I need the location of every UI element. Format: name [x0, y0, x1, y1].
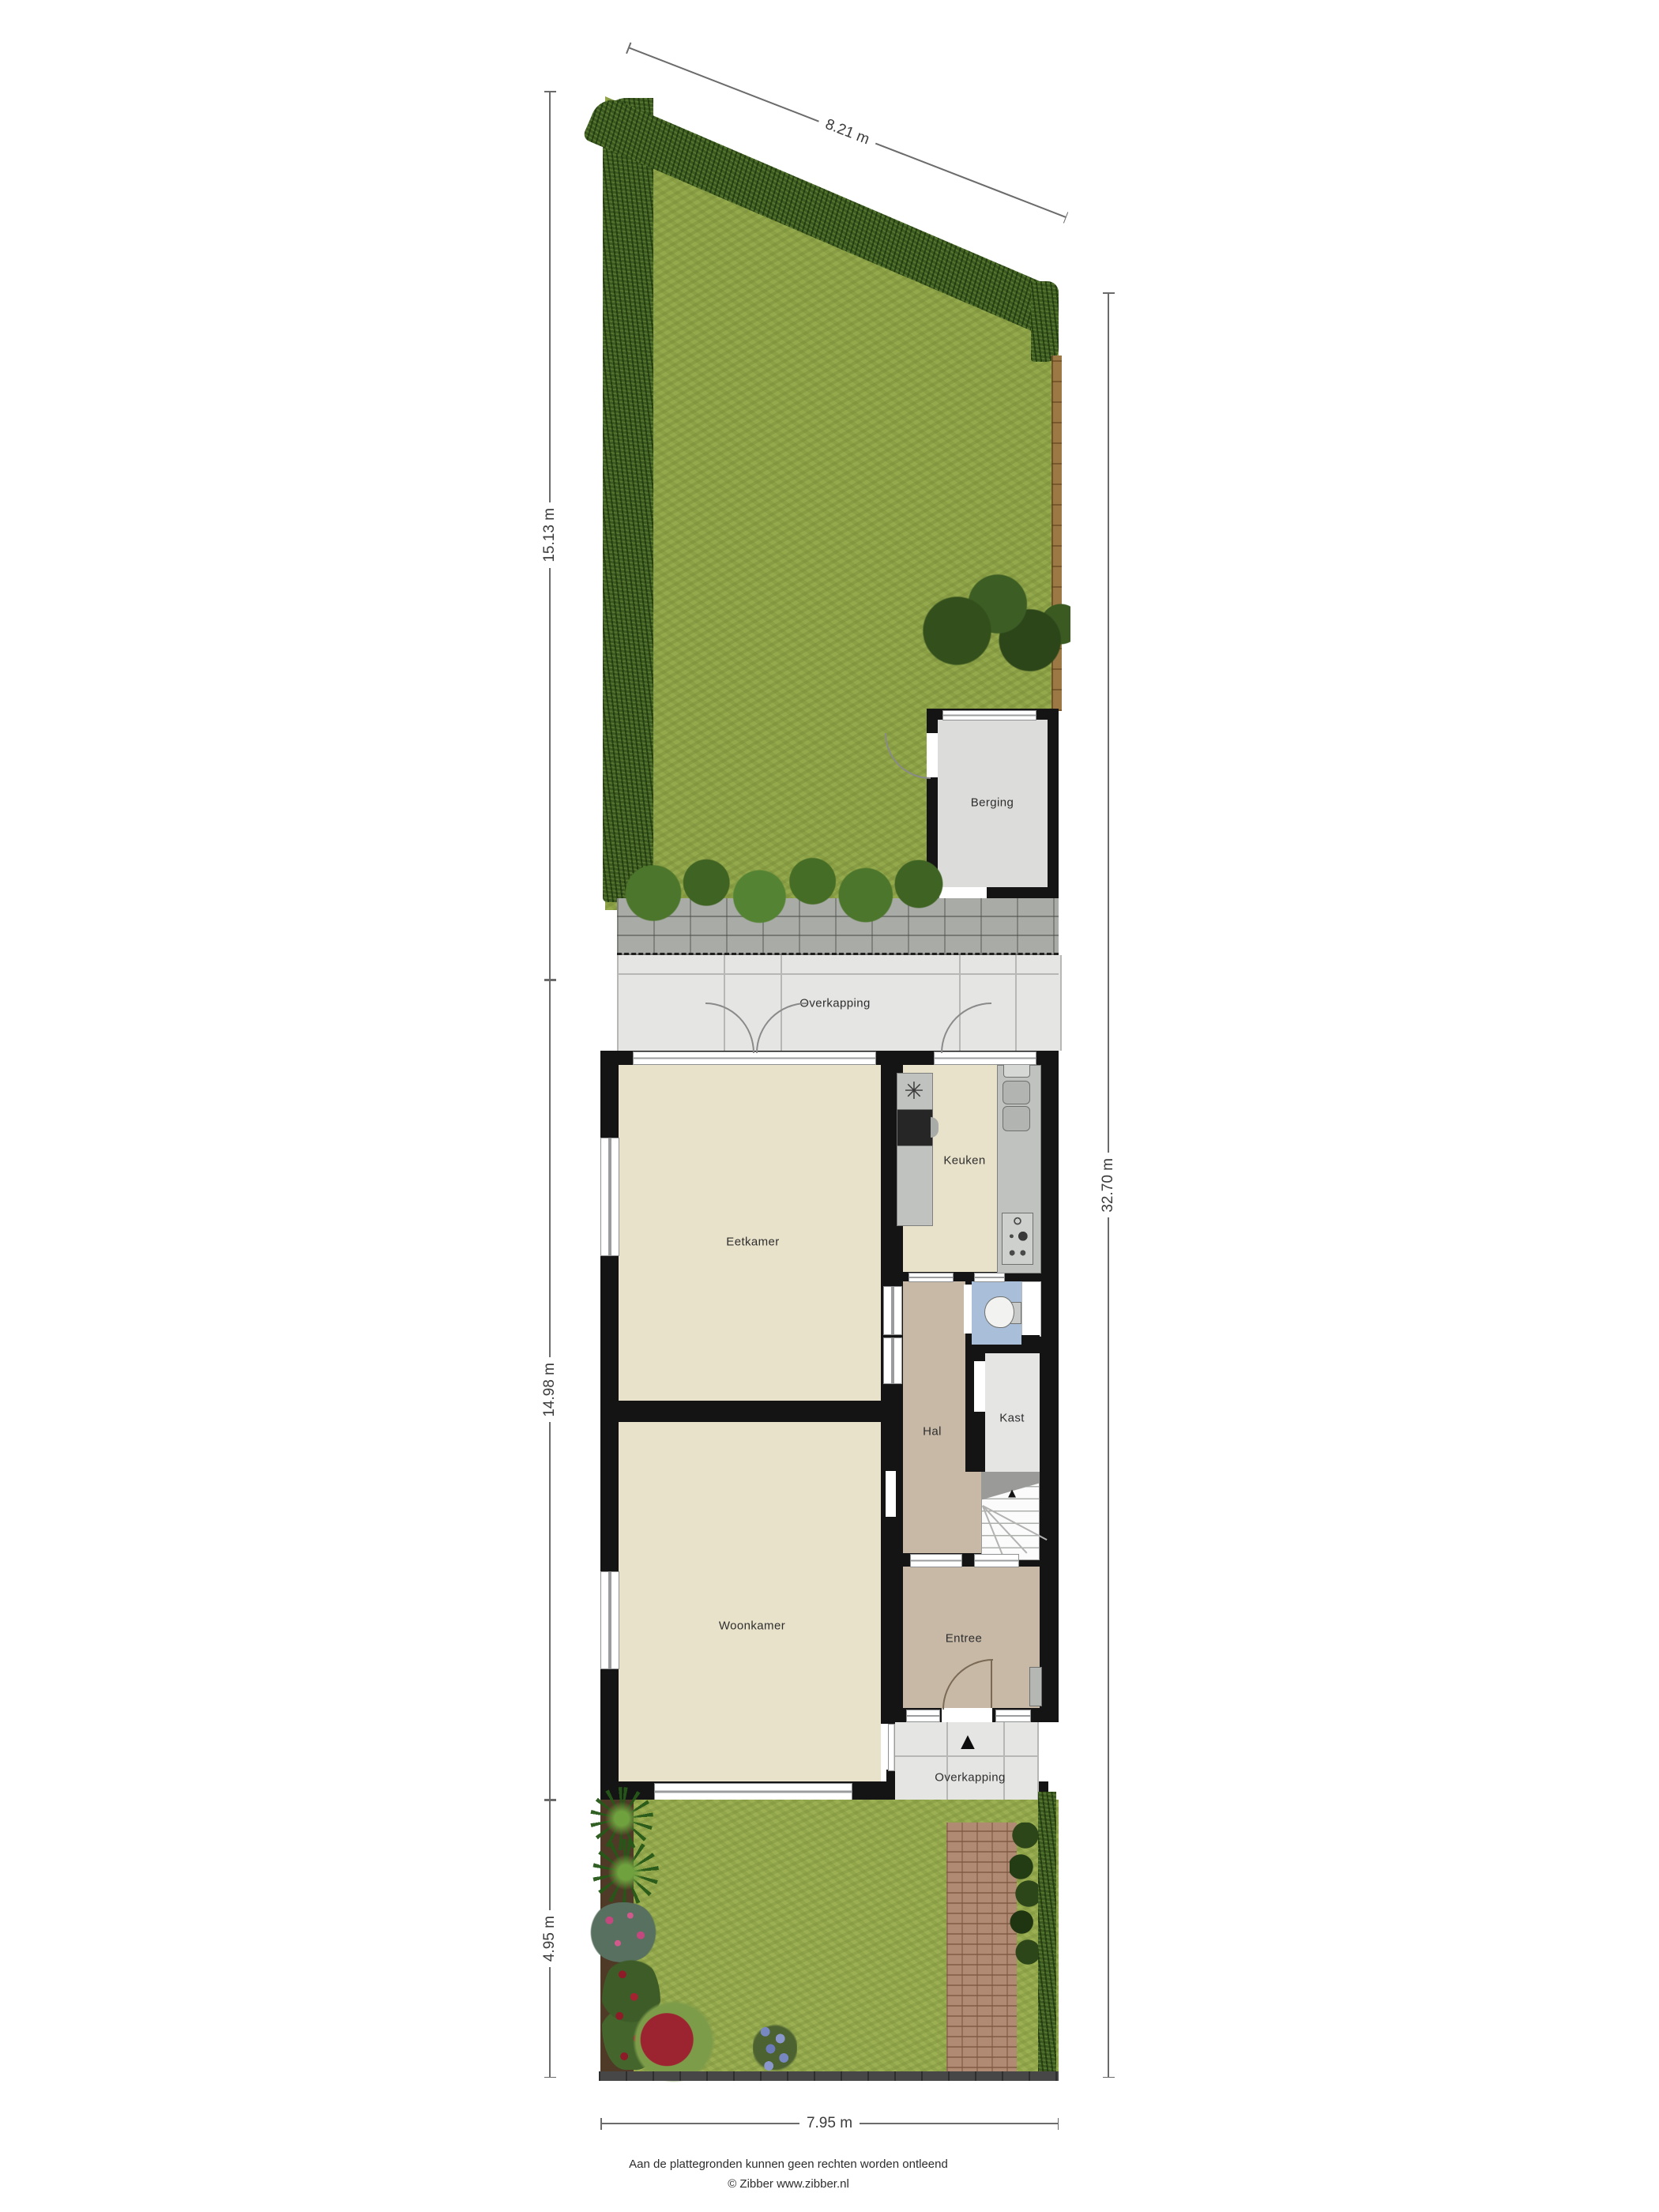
north-arrow-icon: ▲	[956, 1730, 980, 1754]
dim-line	[1108, 1217, 1109, 2076]
room-label-kast: Kast	[999, 1412, 1025, 1425]
canopy-line	[1015, 955, 1017, 1051]
window-eetkamer-hal-1	[883, 1286, 902, 1335]
room-label-berging: Berging	[971, 796, 1014, 810]
dim-tick	[1103, 2077, 1115, 2078]
door-toilet	[964, 1285, 972, 1334]
footer: Aan de plattegronden kunnen geen rechten…	[0, 2155, 1577, 2195]
dim-line	[549, 1422, 551, 1798]
hedge-corner-right	[1031, 281, 1059, 362]
front-door-opening	[942, 1708, 992, 1722]
front-garden-border	[599, 2071, 1059, 2081]
dimension-label-left-middle: 14.98 m	[541, 1357, 559, 1423]
path-border-shrubs	[1010, 1823, 1041, 1981]
footer-credit: © Zibber www.zibber.nl	[0, 2175, 1577, 2195]
house-wall-right	[1040, 1051, 1059, 1722]
dim-line	[549, 1967, 551, 2076]
dim-line	[1108, 294, 1109, 1153]
hedge-front-right	[1038, 1792, 1056, 2076]
dim-tick	[544, 2077, 556, 2078]
garden-shrub	[908, 557, 1070, 691]
window-eetkamer-top	[633, 1051, 876, 1065]
dimension-left-lower: 4.95 m	[532, 1800, 567, 2078]
wall-eetkamer-woonkamer	[619, 1401, 881, 1422]
room-label-eetkamer: Eetkamer	[726, 1236, 779, 1249]
room-label-keuken: Keuken	[943, 1154, 985, 1168]
canopy-line	[895, 1755, 1037, 1757]
yucca-plant	[592, 1839, 659, 1905]
room-label-woonkamer: Woonkamer	[719, 1619, 785, 1633]
wall-toilet-stub	[1021, 1335, 1040, 1345]
dim-line	[549, 981, 551, 1357]
room-label-overkapping-bottom: Overkapping	[935, 1771, 1005, 1785]
dim-line	[549, 1801, 551, 1910]
dim-line	[629, 47, 819, 122]
dim-line	[875, 143, 1066, 218]
bush-pink-flowers	[589, 1902, 658, 1962]
dimension-label-left-lower: 4.95 m	[541, 1910, 559, 1967]
kitchen-island-counter	[897, 1145, 933, 1226]
canopy-line	[617, 973, 1059, 975]
dimension-label-bottom: 7.95 m	[799, 2115, 860, 2132]
window-eetkamer-hal-2	[883, 1337, 902, 1384]
kitchen-appliance	[1003, 1106, 1030, 1131]
dimension-right: 32.70 m	[1091, 292, 1126, 2078]
berging-window	[942, 710, 1036, 720]
room-hal-extension	[965, 1472, 981, 1553]
window-woonkamer-bottom	[654, 1783, 852, 1800]
front-door-leaf	[991, 1659, 992, 1708]
toilet-bowl	[984, 1296, 1014, 1328]
dim-line	[860, 2123, 1057, 2124]
kitchen-island-stove	[897, 1109, 933, 1147]
dimension-left-middle: 14.98 m	[532, 980, 567, 1800]
dimension-bottom: 7.95 m	[600, 2109, 1059, 2138]
dimension-label-right: 32.70 m	[1100, 1153, 1117, 1218]
meter-box	[1029, 1667, 1042, 1706]
room-label-hal: Hal	[923, 1425, 942, 1439]
room-label-entree: Entree	[946, 1632, 983, 1646]
room-eetkamer	[619, 1065, 881, 1401]
window-hal-entree-2	[974, 1554, 1019, 1567]
window-woonkamer-left	[600, 1571, 619, 1669]
extractor-fan-icon: ✳	[904, 1080, 924, 1104]
dimension-label-left-upper: 15.13 m	[541, 502, 559, 568]
dim-line	[602, 2123, 799, 2124]
floor-plan-canvas: Berging Overkapping ▲ ✳	[0, 0, 1659, 2212]
dimension-label-top: 8.21 m	[816, 114, 878, 152]
gas-hob	[1002, 1213, 1033, 1265]
flowers-blue	[753, 2019, 797, 2076]
bushes-row	[620, 855, 952, 924]
window-entree-bottom-right	[995, 1710, 1031, 1722]
hedge-left	[603, 98, 653, 902]
dim-line	[549, 568, 551, 979]
room-woonkamer	[619, 1422, 881, 1781]
room-hal	[903, 1281, 965, 1553]
footer-disclaimer: Aan de plattegronden kunnen geen rechten…	[0, 2155, 1577, 2175]
dim-line	[549, 92, 551, 503]
wall-toilet-bottom	[964, 1345, 1040, 1353]
window-eetkamer-left	[600, 1138, 619, 1256]
kitchen-appliance	[1003, 1081, 1030, 1104]
window-keuken-hal-1	[908, 1273, 954, 1282]
dimension-left-upper: 15.13 m	[532, 91, 567, 980]
stairs-up-arrow-icon: ▲	[1006, 1487, 1019, 1500]
window-keuken-hal-2	[974, 1273, 1005, 1282]
window-entree-bottom-left	[906, 1710, 940, 1722]
window-keuken-top	[934, 1051, 1036, 1065]
door-kast	[974, 1361, 985, 1412]
dim-tick	[1058, 2118, 1059, 2130]
garden-path	[946, 1823, 1017, 2078]
room-label-overkapping-top: Overkapping	[799, 997, 870, 1010]
toilet-door-leaf-area	[1021, 1281, 1041, 1337]
window-hal-entree-1	[910, 1554, 962, 1567]
door-woonkamer-hal	[886, 1471, 896, 1517]
